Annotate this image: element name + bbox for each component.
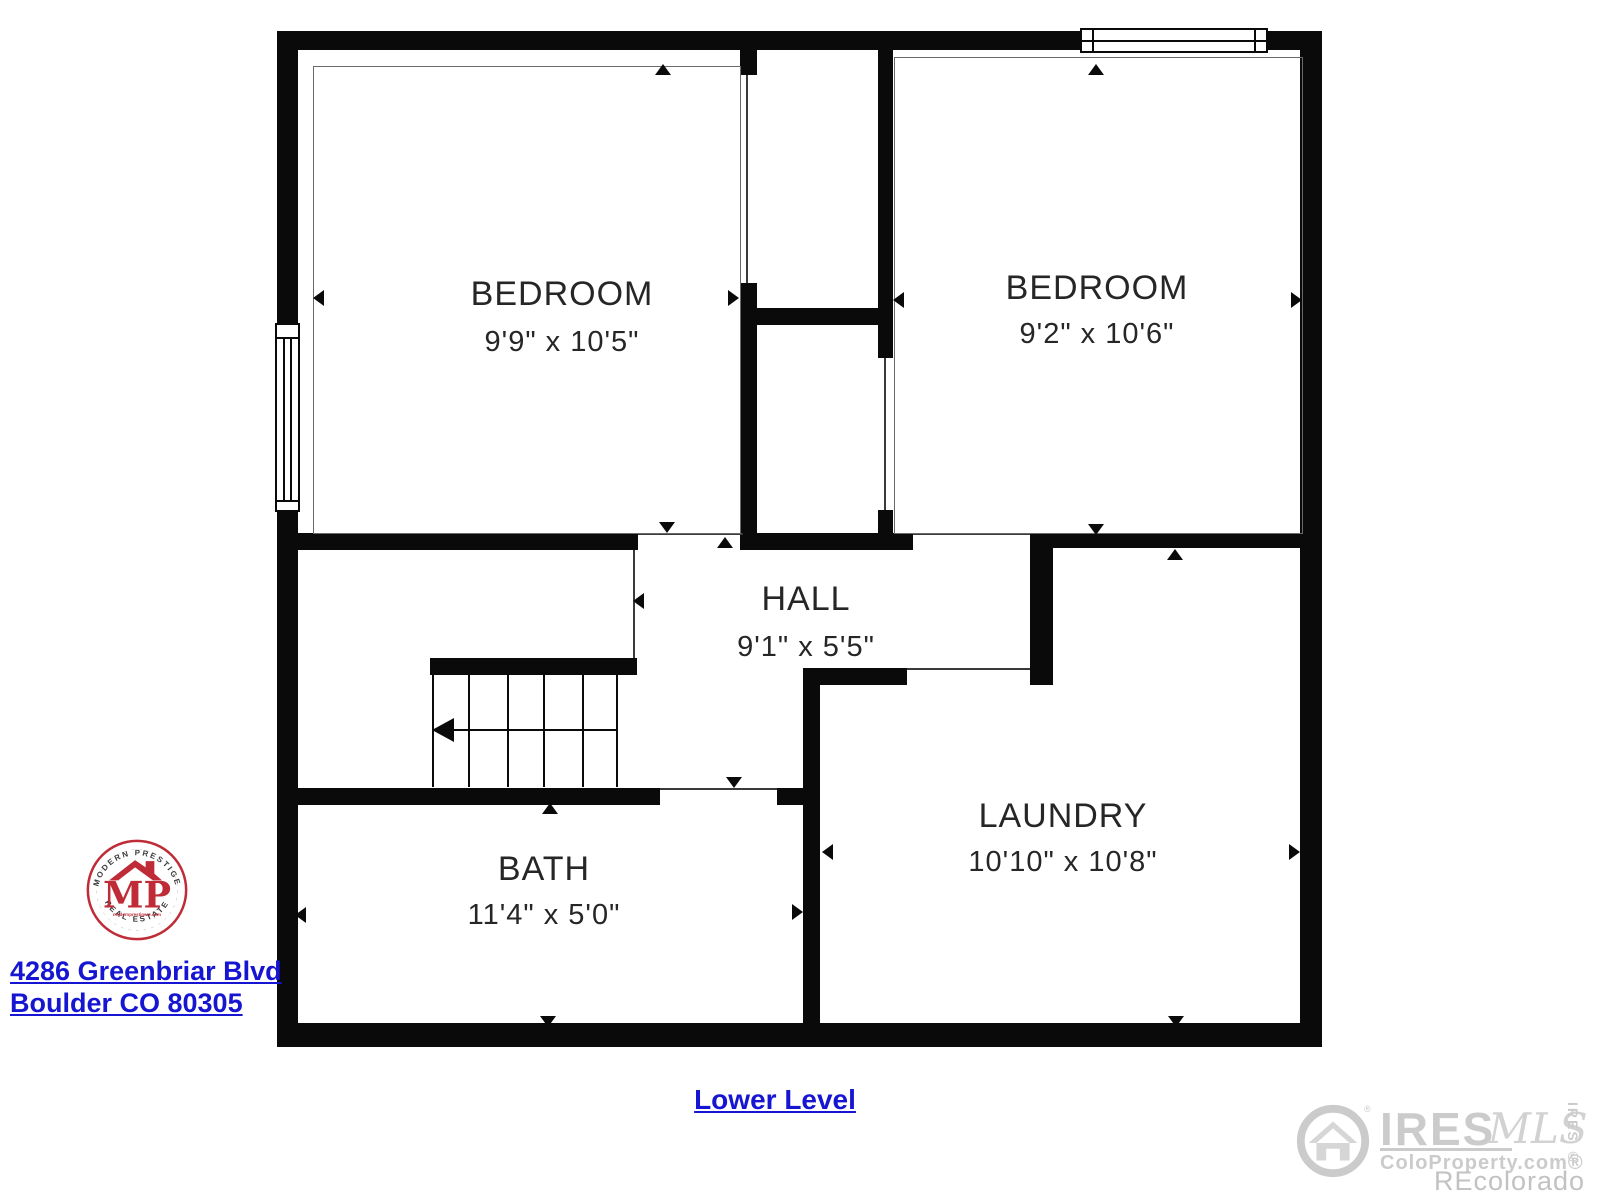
wall-bedroom1-bottom [298, 533, 638, 550]
door-line-closet1 [746, 75, 748, 283]
dimension-marker [717, 537, 733, 548]
wall-laundry-top [1030, 533, 1300, 548]
address-line-1[interactable]: 4286 Greenbriar Blvd [10, 956, 282, 987]
wall-outer-left-upper [277, 31, 298, 323]
wall-closet-right-stub [878, 510, 893, 533]
window-symbol-left [275, 323, 300, 512]
dimension-marker [1168, 1016, 1184, 1027]
wall-laundry-left-lower [803, 668, 820, 1023]
room-dims-hall: 9'1" x 5'5" [656, 632, 956, 664]
dimension-marker [313, 290, 324, 306]
mls-watermark: ® IRES MLS ColoProperty.com® IRES © REco… [1288, 1100, 1593, 1198]
level-label-link[interactable]: Lower Level [625, 1084, 925, 1116]
logo-website: modernprestigere.com [113, 912, 161, 917]
wall-closet-right [878, 50, 893, 358]
stair-tread [468, 675, 470, 787]
window-symbol-top [1080, 28, 1268, 53]
address-line-2[interactable]: Boulder CO 80305 [10, 988, 243, 1019]
stair-tread [543, 675, 545, 787]
wall-closet-left-stub [740, 50, 757, 75]
dimension-marker [542, 803, 558, 814]
room-label-hall: HALL [656, 581, 956, 618]
room-dims-laundry: 10'10" x 10'8" [913, 847, 1213, 879]
dimension-marker [893, 292, 904, 308]
dimension-marker [1030, 595, 1041, 611]
dimension-marker [728, 290, 739, 306]
door-line-closet2 [884, 358, 886, 510]
dimension-marker [792, 904, 803, 920]
agency-logo: MODERN PRESTIGE REAL ESTATE MP modernpre… [84, 837, 190, 943]
dimension-marker [822, 844, 833, 860]
dimension-marker [726, 777, 742, 788]
watermark-divider [1380, 1148, 1512, 1151]
dimension-marker [1088, 524, 1104, 535]
dimension-marker [1167, 549, 1183, 560]
stair-tread [582, 675, 584, 787]
room-dims-bedroom-2: 9'2" x 10'6" [947, 319, 1247, 351]
room-label-bath: BATH [394, 851, 694, 888]
door-line-laundry [907, 668, 1030, 670]
room-dims-bedroom-1: 9'9" x 10'5" [412, 327, 712, 359]
wall-closet-divider [740, 308, 893, 325]
dimension-marker [540, 1016, 556, 1027]
door-line-bath [660, 788, 777, 790]
staircase [432, 675, 618, 787]
dimension-marker [1291, 292, 1302, 308]
dimension-marker [1289, 844, 1300, 860]
wall-outer-bottom [277, 1023, 1322, 1047]
wall-outer-right [1300, 31, 1322, 1047]
wall-bath-top-right [777, 788, 820, 805]
wall-bath-top-left [298, 788, 660, 805]
dimension-marker [659, 522, 675, 533]
dimension-marker [633, 593, 644, 609]
stair-tread [507, 675, 509, 787]
wall-stairs-top [430, 658, 637, 675]
floorplan-page: BEDROOM 9'9" x 10'5" BEDROOM 9'2" x 10'6… [0, 0, 1600, 1200]
stair-direction-line [452, 729, 618, 731]
room-label-laundry: LAUNDRY [913, 798, 1213, 835]
wall-hall-top [740, 533, 913, 550]
dimension-marker [295, 907, 306, 923]
logo-monogram: MP [103, 873, 171, 916]
dimension-marker [1088, 64, 1104, 75]
room-label-bedroom-2: BEDROOM [947, 270, 1247, 307]
stair-direction-arrow-icon [432, 718, 454, 742]
room-dims-bath: 11'4" x 5'0" [394, 900, 694, 932]
dimension-marker [655, 64, 671, 75]
ires-house-badge-icon: ® [1294, 1102, 1372, 1180]
watermark-registered-mark: ® [1364, 1104, 1371, 1114]
watermark-recolorado-text: REcolorado [1434, 1166, 1585, 1197]
room-label-bedroom-1: BEDROOM [412, 276, 712, 313]
